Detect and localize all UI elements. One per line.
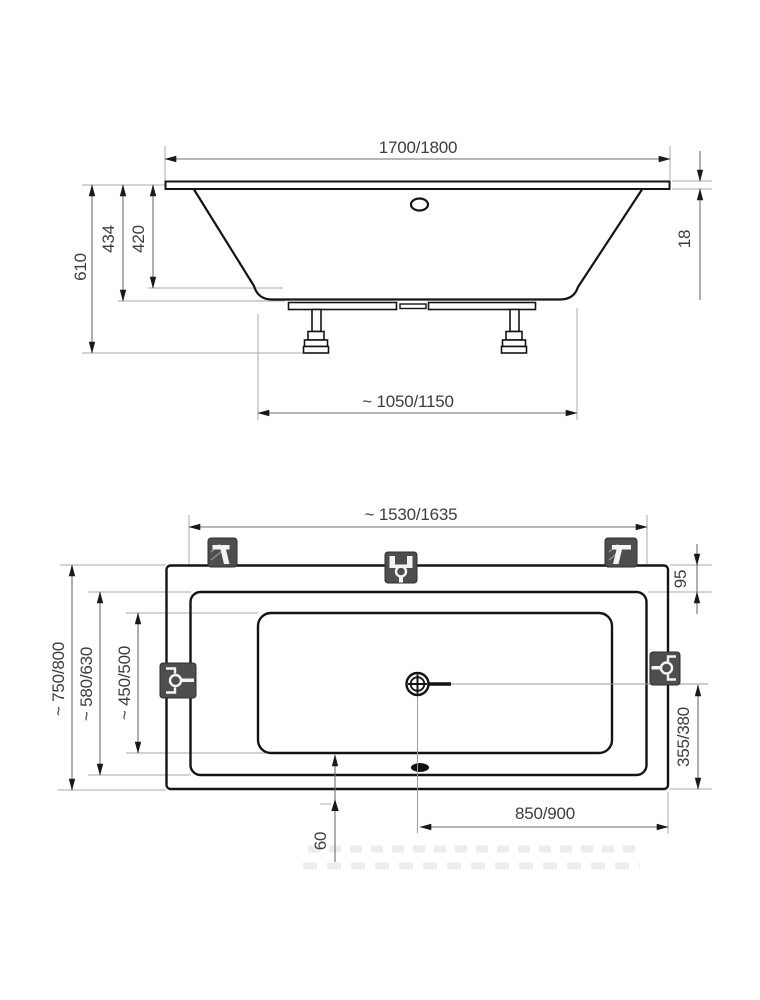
dim-elevation-shell-height: 434 xyxy=(99,225,118,253)
dim-plan-total-depth: ~ 750/800 xyxy=(49,642,68,716)
dim-elevation-top-width: 1700/1800 xyxy=(379,138,458,157)
faucet-bracket-icon-top-left xyxy=(208,538,237,567)
dim-plan-drain-to-bottom: 355/380 xyxy=(674,707,693,767)
dim-plan-drain-to-right: 850/900 xyxy=(515,804,575,823)
dim-elevation-total-height: 610 xyxy=(71,253,90,281)
dim-plan-mount-width: ~ 1530/1635 xyxy=(365,505,458,524)
dim-elevation-base-width: ~ 1050/1150 xyxy=(362,392,454,411)
dim-plan-rim-depth: ~ 580/630 xyxy=(77,647,96,721)
bathtub-technical-drawing: 1700/1800 610 434 420 18 ~ 1050/1150 xyxy=(0,0,760,1000)
support-clip-icon-left xyxy=(160,663,196,698)
dim-plan-basin-bottom-offset: 60 xyxy=(311,832,330,851)
faucet-bracket-icon-top-right xyxy=(605,538,637,567)
dim-plan-rim-offset: 95 xyxy=(671,570,690,589)
support-frame xyxy=(289,303,536,310)
support-clip-icon-top-center xyxy=(385,552,417,583)
drawing-canvas: 1700/1800 610 434 420 18 ~ 1050/1150 xyxy=(0,0,760,1000)
dim-plan-basin-depth: ~ 450/500 xyxy=(115,646,134,720)
dim-elevation-inner-depth: 420 xyxy=(129,225,148,253)
dim-elevation-rim-thickness: 18 xyxy=(675,230,694,249)
overflow-hole xyxy=(411,763,429,772)
support-clip-icon-right xyxy=(650,652,680,685)
bathtub-rim-profile xyxy=(166,182,670,190)
